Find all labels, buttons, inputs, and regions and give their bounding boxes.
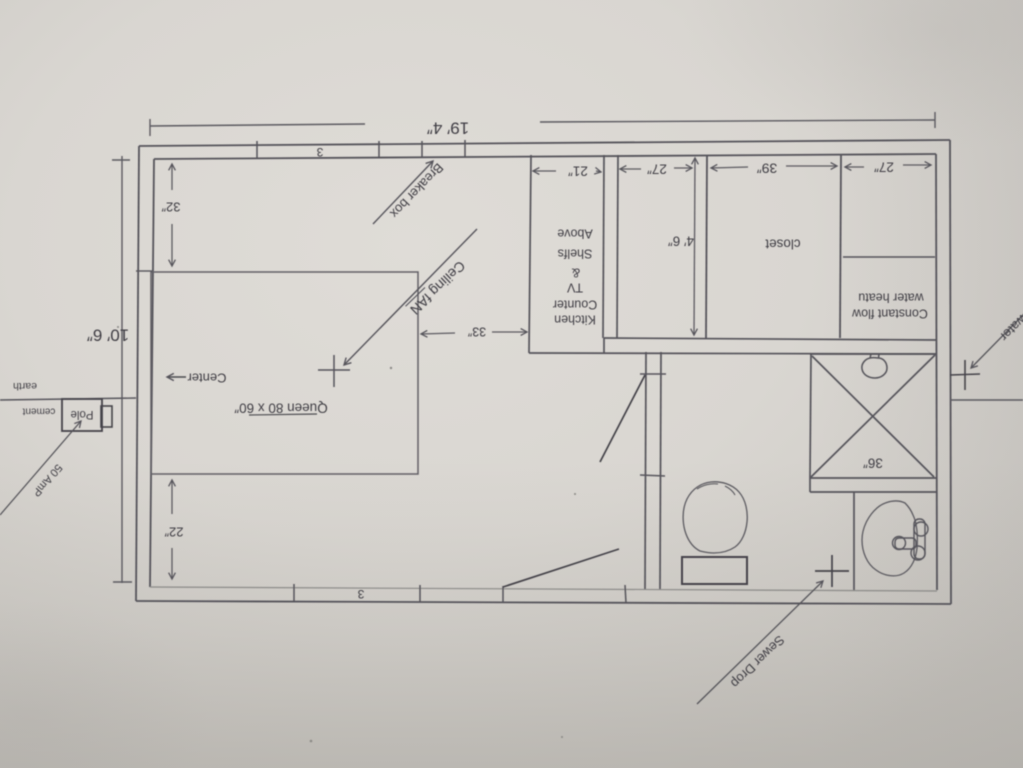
svg-text:Counter: Counter [553,298,597,312]
svg-text:Constant flow: Constant flow [851,307,928,321]
svg-text:3: 3 [357,587,364,601]
svg-text:Queen 80 x 60″: Queen 80 x 60″ [234,400,328,415]
svg-text:36″: 36″ [863,455,883,470]
svg-text:earth: earth [13,380,37,392]
svg-text:32″: 32″ [161,200,180,215]
svg-text:Shelfs: Shelfs [558,247,593,261]
svg-text:10′ 6″: 10′ 6″ [87,326,129,345]
svg-text:Above: Above [557,227,592,241]
svg-text:22″: 22″ [164,525,183,540]
svg-text:cement: cement [22,405,55,416]
svg-text:39″: 39″ [757,160,778,176]
svg-text:TV: TV [566,281,583,295]
svg-text:27″: 27″ [647,161,667,176]
svg-text:33″: 33″ [467,325,486,339]
svg-text:3: 3 [316,145,323,159]
svg-text:Center: Center [187,371,227,386]
svg-text:4′ 6″: 4′ 6″ [668,233,694,248]
svg-text:water heatu: water heatu [858,291,924,305]
svg-text:27″: 27″ [874,159,894,174]
svg-text:Pole: Pole [70,408,93,420]
svg-text:19′ 4″: 19′ 4″ [427,119,469,138]
svg-text:closet: closet [765,236,801,251]
svg-text:&: & [571,266,580,280]
svg-text:21″: 21″ [568,163,588,178]
svg-text:Kitchen: Kitchen [554,313,596,327]
